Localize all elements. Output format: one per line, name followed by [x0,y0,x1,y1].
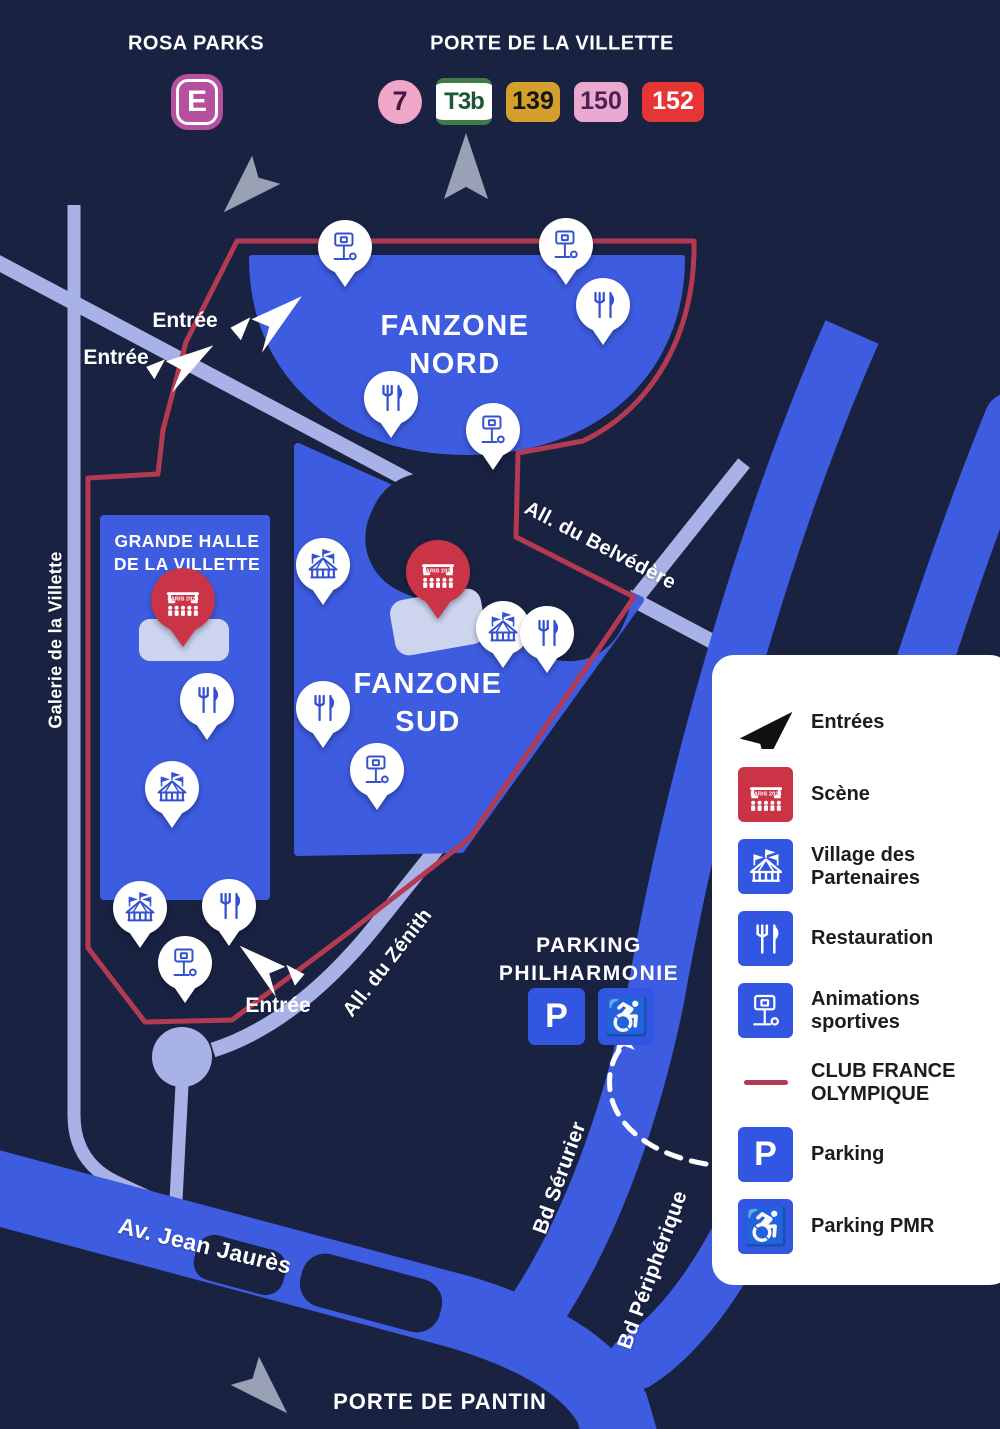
partner-village-tent-icon [746,847,786,887]
wheelchair-icon: ♿ [743,1206,788,1248]
partner-village-tent-icon [122,890,158,926]
stage-icon: PARIS 2024 [416,550,460,594]
map-pin-food [520,606,574,660]
parking-p-square: P [528,988,585,1045]
transit-badge-e: E [176,79,218,125]
map-pin-food [202,879,256,933]
station-porte-de-la-villette: PORTE DE LA VILLETTE [430,33,674,56]
parking-philharmonie-label: PARKINGPHILHARMONIE [459,932,719,987]
entrance-label: Entrée [152,309,217,333]
wheelchair-icon: ♿ [604,996,649,1038]
map-pin-food [576,278,630,332]
parking-icon: P [545,997,568,1036]
map-pin-village [113,881,167,935]
entrance-label: Entrée [245,994,310,1018]
station-rosa-parks: ROSA PARKS [128,33,264,56]
entrance-arrow-icon [740,697,792,749]
transit-badge-7: 7 [378,80,422,124]
legend-item-food: Restauration [738,911,1000,966]
porte-de-la-villette-badges: 7T3b139150152 [378,78,704,125]
fork-knife-icon [746,919,786,959]
svg-text:PARIS 2024: PARIS 2024 [750,791,782,797]
legend-item-village: Village des Partenaires [738,839,1000,894]
map-pin-sports [539,218,593,272]
legend-item-parking: PParking [738,1127,1000,1182]
pantin-exit-arrow-icon [231,1357,302,1428]
street-galerie-de-la-villette: Galerie de la Villette [46,551,67,728]
fork-knife-icon [211,888,247,924]
map-root: ROSA PARKS E PORTE DE LA VILLETTE 7T3b13… [0,0,1000,1429]
entrance-arrow-icon [240,946,305,997]
rosa-parks-badges: E [171,74,223,130]
map-pin-sports [350,743,404,797]
roundabout [152,1027,212,1087]
map-pin-food [364,371,418,425]
fork-knife-icon [585,287,621,323]
map-pin-food [180,673,234,727]
transit-badge-152: 152 [642,82,704,122]
fork-knife-icon [373,380,409,416]
basketball-hoop-icon [548,227,584,263]
stage-icon: PARIS 2024 [161,578,205,622]
transit-badge-139: 139 [506,82,560,122]
gate-porte-de-pantin: PORTE DE PANTIN [333,1389,547,1415]
fork-knife-icon [529,615,565,651]
svg-text:PARIS 2024: PARIS 2024 [167,596,199,602]
map-pin-village [296,538,350,592]
fanzone-nord-label: FANZONENORD [305,307,605,384]
road-roundabout-link [176,1085,182,1200]
basketball-hoop-icon [167,945,203,981]
legend-item-route: CLUB FRANCE OLYMPIQUE [738,1055,1000,1110]
parking-pmr-square: ♿ [598,988,655,1045]
map-pin-sports [466,403,520,457]
transit-badge-150: 150 [574,82,628,122]
basketball-hoop-icon [327,229,363,265]
fork-knife-icon [305,690,341,726]
map-pin-sports [318,220,372,274]
map-pin-sports [158,936,212,990]
route-line-swatch [744,1080,788,1085]
fork-knife-icon [189,682,225,718]
north-arrow-icon [444,133,488,199]
parking-icon: P [754,1135,777,1174]
svg-text:PARIS 2024: PARIS 2024 [422,568,454,574]
map-pin-stage: PARIS 2024 [151,568,215,632]
basketball-hoop-icon [746,991,786,1031]
partner-village-tent-icon [305,547,341,583]
legend-panel: Entrées PARIS 2024 Scène Village des Par… [712,655,1000,1285]
entrance-label: Entrée [83,346,148,370]
map-pin-food [296,681,350,735]
northwest-exit-arrow-icon [210,156,281,227]
legend-item-entrance: Entrées [738,695,1000,750]
legend-item-pmr: ♿Parking PMR [738,1199,1000,1254]
basketball-hoop-icon [359,752,395,788]
transit-badge-t3b: T3b [436,78,492,125]
stage-icon: PARIS 2024 [744,773,788,817]
basketball-hoop-icon [475,412,511,448]
map-pin-stage: PARIS 2024 [406,540,470,604]
partner-village-tent-icon [154,770,190,806]
legend-item-sports: Animations sportives [738,983,1000,1038]
partner-village-tent-icon [485,610,521,646]
legend-item-stage: PARIS 2024 Scène [738,767,1000,822]
map-pin-village [145,761,199,815]
